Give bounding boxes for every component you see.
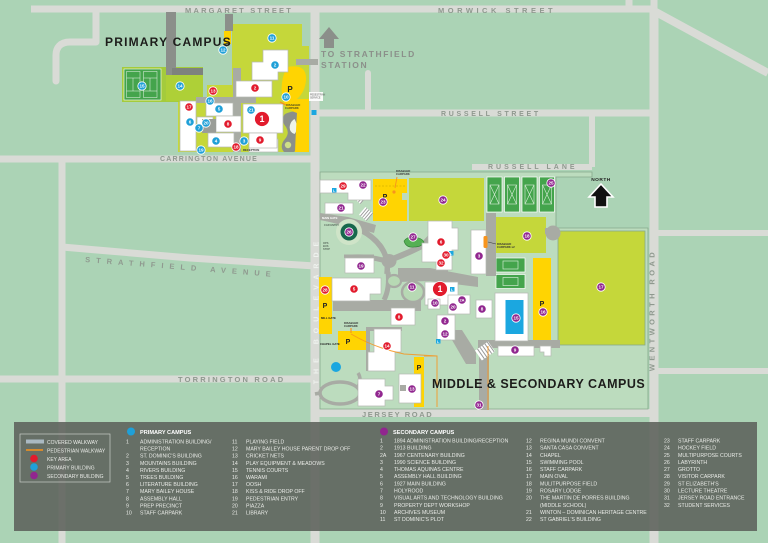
svg-text:ST. DOMINIC'S BUILDING: ST. DOMINIC'S BUILDING	[140, 454, 202, 460]
svg-text:P: P	[287, 85, 293, 94]
svg-text:27: 27	[410, 235, 416, 240]
svg-text:MOUNTAINS BUILDING: MOUNTAINS BUILDING	[140, 461, 197, 467]
svg-text:20: 20	[450, 305, 456, 310]
svg-text:GROTTO: GROTTO	[678, 467, 700, 473]
svg-text:3: 3	[243, 139, 246, 144]
svg-text:19: 19	[358, 264, 364, 269]
svg-text:16: 16	[207, 99, 213, 104]
svg-text:9: 9	[380, 503, 383, 509]
svg-text:6: 6	[189, 120, 192, 125]
svg-text:8: 8	[227, 122, 230, 127]
svg-text:25: 25	[548, 181, 554, 186]
svg-text:18: 18	[526, 481, 532, 487]
svg-text:WARAMI: WARAMI	[246, 475, 267, 481]
svg-text:CHAPEL: CHAPEL	[540, 453, 561, 459]
svg-text:8: 8	[380, 496, 383, 502]
svg-text:24: 24	[664, 446, 670, 452]
svg-text:TORRINGTON ROAD: TORRINGTON ROAD	[178, 375, 285, 384]
svg-text:MULTIPURPOSE COURTS: MULTIPURPOSE COURTS	[678, 453, 742, 459]
svg-text:COVERED WALKWAY: COVERED WALKWAY	[47, 440, 99, 446]
svg-text:P: P	[417, 365, 422, 372]
svg-text:1: 1	[437, 284, 442, 294]
svg-text:VISITOR CARPARK: VISITOR CARPARK	[678, 474, 725, 480]
svg-text:ST GABRIEL'S BUILDING: ST GABRIEL'S BUILDING	[540, 517, 601, 523]
svg-text:28: 28	[664, 474, 670, 480]
svg-text:29: 29	[664, 481, 670, 487]
svg-text:30: 30	[443, 253, 449, 258]
svg-text:16: 16	[526, 467, 532, 473]
svg-text:STAFF CARPARK: STAFF CARPARK	[678, 439, 721, 445]
svg-text:SWIMMING POOL: SWIMMING POOL	[540, 460, 584, 466]
svg-text:HOCKEY FIELD: HOCKEY FIELD	[678, 446, 716, 452]
svg-text:MULITPURPOSE FIELD: MULITPURPOSE FIELD	[540, 481, 597, 487]
svg-text:PRIMARY BUILDING: PRIMARY BUILDING	[47, 466, 95, 472]
svg-text:12: 12	[220, 48, 226, 53]
svg-text:KEY AREA: KEY AREA	[47, 457, 72, 463]
svg-text:14: 14	[526, 453, 532, 459]
svg-text:NORTH: NORTH	[591, 177, 611, 183]
svg-text:20: 20	[232, 503, 238, 509]
svg-text:10: 10	[432, 301, 438, 306]
svg-text:1: 1	[380, 439, 383, 445]
svg-text:9: 9	[126, 503, 129, 509]
svg-text:1913 BUILDING: 1913 BUILDING	[394, 446, 431, 452]
svg-text:LECTURE THEATRE: LECTURE THEATRE	[678, 489, 728, 495]
svg-text:1: 1	[126, 440, 129, 446]
svg-text:MARY BAILEY HOUSE PARENT DROP: MARY BAILEY HOUSE PARENT DROP OFF	[246, 447, 350, 453]
svg-text:26: 26	[664, 460, 670, 466]
svg-text:2: 2	[444, 319, 447, 324]
svg-text:16: 16	[232, 475, 238, 481]
svg-text:32: 32	[438, 261, 444, 266]
svg-text:ADMINISTRATION BUILDING/: ADMINISTRATION BUILDING/	[140, 440, 212, 446]
svg-text:14: 14	[177, 84, 183, 89]
svg-text:3: 3	[126, 461, 129, 467]
svg-text:CRICKET NETS: CRICKET NETS	[246, 454, 284, 460]
svg-text:20: 20	[526, 496, 532, 502]
svg-text:15: 15	[232, 468, 238, 474]
svg-text:7: 7	[378, 392, 381, 397]
svg-text:2A: 2A	[459, 297, 464, 302]
svg-text:17: 17	[598, 285, 604, 290]
svg-text:LITERATURE BUILDING: LITERATURE BUILDING	[140, 482, 198, 488]
svg-text:3: 3	[478, 254, 481, 259]
svg-text:14: 14	[232, 461, 238, 467]
svg-text:SECONDARY BUILDING: SECONDARY BUILDING	[47, 474, 104, 480]
svg-text:PLAYING FIELD: PLAYING FIELD	[246, 440, 284, 446]
svg-text:10: 10	[380, 510, 386, 516]
svg-text:10: 10	[283, 95, 289, 100]
svg-text:ROSARY LODGE: ROSARY LODGE	[540, 489, 582, 495]
svg-text:13: 13	[409, 387, 415, 392]
svg-text:25: 25	[664, 453, 670, 459]
svg-text:10: 10	[126, 511, 132, 517]
svg-text:RECEPTION: RECEPTION	[140, 447, 171, 453]
svg-text:ST ELIZABETH'S: ST ELIZABETH'S	[678, 481, 719, 487]
svg-text:12: 12	[442, 332, 448, 337]
svg-text:29: 29	[340, 184, 346, 189]
svg-text:20: 20	[203, 121, 209, 126]
svg-text:7: 7	[380, 489, 383, 495]
svg-text:26: 26	[346, 230, 352, 235]
svg-text:8: 8	[126, 496, 129, 502]
svg-text:SERVICE: SERVICE	[310, 97, 321, 100]
svg-text:6: 6	[380, 481, 383, 487]
svg-text:HOLYROOD: HOLYROOD	[394, 489, 424, 495]
svg-text:PEDESTRIAN ENTRY: PEDESTRIAN ENTRY	[246, 496, 299, 502]
svg-text:9: 9	[514, 348, 517, 353]
svg-text:18: 18	[524, 234, 530, 239]
svg-text:WINTON – DOMINICAN HERITAGE CE: WINTON – DOMINICAN HERITAGE CENTRE	[540, 510, 647, 516]
svg-text:13: 13	[210, 89, 216, 94]
svg-text:9: 9	[259, 138, 262, 143]
svg-text:CARRINGTON AVENUE: CARRINGTON AVENUE	[160, 156, 258, 163]
svg-text:MAIN OVAL: MAIN OVAL	[540, 474, 568, 480]
svg-text:11: 11	[232, 440, 237, 446]
svg-text:31: 31	[476, 403, 482, 408]
svg-text:1990 SCIENCE BUILDING: 1990 SCIENCE BUILDING	[394, 460, 456, 466]
svg-text:17: 17	[232, 482, 238, 488]
svg-text:16: 16	[540, 310, 546, 315]
svg-text:CAR ENTRY: CAR ENTRY	[324, 223, 339, 227]
svg-text:2: 2	[380, 446, 383, 452]
svg-text:SANTA CASA CONVENT: SANTA CASA CONVENT	[540, 446, 600, 452]
svg-text:19: 19	[526, 489, 532, 495]
svg-text:STAFF CARPARK: STAFF CARPARK	[140, 511, 183, 517]
svg-text:CARPARK: CARPARK	[344, 324, 358, 328]
svg-text:1894 ADMINISTRATION BUILDING/R: 1894 ADMINISTRATION BUILDING/RECEPTION	[394, 439, 509, 445]
svg-text:TENNIS COURTS: TENNIS COURTS	[246, 468, 289, 474]
svg-text:28: 28	[322, 288, 328, 293]
svg-text:23: 23	[664, 439, 670, 445]
svg-text:PEDESTRIAN WALKWAY: PEDESTRIAN WALKWAY	[47, 449, 106, 455]
svg-text:ASSEMBLY HALL BUILDING: ASSEMBLY HALL BUILDING	[394, 474, 462, 480]
svg-text:24: 24	[440, 198, 446, 203]
svg-text:CHAPEL GATE: CHAPEL GATE	[320, 342, 340, 346]
svg-text:18: 18	[232, 489, 238, 495]
svg-text:2: 2	[126, 454, 129, 460]
svg-text:MILL GATE: MILL GATE	[321, 316, 336, 320]
svg-text:VISUAL ARTS AND TECHNOLOGY BUI: VISUAL ARTS AND TECHNOLOGY BUILDING	[394, 496, 503, 502]
svg-text:MARY BAILEY HOUSE: MARY BAILEY HOUSE	[140, 489, 195, 495]
svg-text:PRIMARY CAMPUS: PRIMARY CAMPUS	[105, 35, 232, 49]
svg-text:22: 22	[526, 517, 532, 523]
svg-text:P: P	[540, 301, 545, 308]
svg-text:STATION: STATION	[321, 60, 368, 70]
svg-text:2: 2	[254, 86, 257, 91]
svg-text:STUDENT SERVICES: STUDENT SERVICES	[678, 503, 731, 509]
svg-text:RECEPTION: RECEPTION	[243, 148, 259, 152]
svg-text:7: 7	[198, 126, 201, 131]
svg-text:MIDDLE & SECONDARY CAMPUS: MIDDLE & SECONDARY CAMPUS	[432, 377, 645, 391]
svg-text:15: 15	[139, 84, 145, 89]
svg-text:2: 2	[274, 63, 277, 68]
svg-text:1927 MAIN BUILDING: 1927 MAIN BUILDING	[394, 481, 446, 487]
svg-text:17: 17	[186, 105, 192, 110]
svg-text:21: 21	[248, 108, 254, 113]
svg-text:ARCHIVES MUSEUM: ARCHIVES MUSEUM	[394, 510, 445, 516]
svg-text:OOSH: OOSH	[246, 482, 262, 488]
svg-text:JERSEY ROAD ENTRANCE: JERSEY ROAD ENTRANCE	[678, 496, 745, 502]
svg-text:18: 18	[233, 145, 239, 150]
svg-text:17: 17	[526, 474, 532, 480]
svg-text:PRIMARY CAMPUS: PRIMARY CAMPUS	[140, 430, 192, 436]
svg-text:11: 11	[270, 36, 275, 41]
svg-text:MORWICK STREET: MORWICK STREET	[438, 6, 556, 15]
svg-text:CARPARK: CARPARK	[285, 106, 299, 110]
svg-text:P: P	[346, 339, 351, 346]
svg-text:12: 12	[232, 447, 238, 453]
svg-text:KISS & RIDE DROP OFF: KISS & RIDE DROP OFF	[246, 489, 305, 495]
svg-text:2A: 2A	[380, 453, 387, 459]
svg-text:THE MARTIN DE PORRES BUILDING: THE MARTIN DE PORRES BUILDING	[540, 496, 630, 502]
svg-text:SECONDARY CAMPUS: SECONDARY CAMPUS	[393, 430, 454, 436]
svg-text:STOP: STOP	[323, 247, 330, 251]
svg-text:5: 5	[126, 475, 129, 481]
svg-text:19: 19	[198, 148, 204, 153]
svg-text:MAIN GATE: MAIN GATE	[322, 216, 338, 220]
svg-text:LABYRINTH: LABYRINTH	[678, 460, 707, 466]
svg-text:JERSEY ROAD: JERSEY ROAD	[362, 410, 433, 419]
svg-text:19: 19	[232, 496, 238, 502]
svg-text:21: 21	[338, 206, 344, 211]
svg-text:23: 23	[380, 200, 386, 205]
svg-text:THOMAS AQUINAS CENTRE: THOMAS AQUINAS CENTRE	[394, 467, 464, 473]
svg-text:MARGARET STREET: MARGARET STREET	[185, 6, 293, 15]
svg-text:ASSEMBLY HALL: ASSEMBLY HALL	[140, 496, 182, 502]
svg-text:30: 30	[664, 489, 670, 495]
svg-text:12: 12	[526, 439, 532, 445]
svg-text:5: 5	[380, 474, 383, 480]
svg-text:21: 21	[232, 511, 238, 517]
svg-text:1967 CENTENARY BUILDING: 1967 CENTENARY BUILDING	[394, 453, 465, 459]
svg-text:RUSSELL STREET: RUSSELL STREET	[441, 111, 541, 118]
svg-text:14: 14	[384, 344, 390, 349]
svg-text:REGINA MUNDI CONVENT: REGINA MUNDI CONVENT	[540, 439, 606, 445]
svg-text:21: 21	[526, 510, 532, 516]
svg-text:8: 8	[481, 307, 484, 312]
svg-text:CARPARK x2: CARPARK x2	[497, 245, 515, 249]
svg-text:PLAY EQUIPMENT & MEADOWS: PLAY EQUIPMENT & MEADOWS	[246, 461, 325, 467]
svg-text:RIVERS BUILDING: RIVERS BUILDING	[140, 468, 185, 474]
svg-text:5: 5	[218, 107, 221, 112]
svg-text:15: 15	[526, 460, 532, 466]
svg-text:PROPERTY DEPT WORKSHOP: PROPERTY DEPT WORKSHOP	[394, 503, 470, 509]
svg-text:4: 4	[126, 468, 129, 474]
svg-text:11: 11	[380, 517, 385, 523]
svg-text:CARPARK: CARPARK	[396, 172, 410, 176]
svg-text:4: 4	[380, 467, 383, 473]
svg-text:LIBRARY: LIBRARY	[246, 511, 269, 517]
svg-text:31: 31	[664, 496, 670, 502]
svg-text:P: P	[323, 303, 328, 310]
svg-text:1: 1	[259, 114, 264, 124]
svg-text:(MIDDLE SCHOOL): (MIDDLE SCHOOL)	[540, 503, 587, 509]
svg-text:8: 8	[398, 315, 401, 320]
svg-text:32: 32	[664, 503, 670, 509]
svg-text:WENTWORTH ROAD: WENTWORTH ROAD	[647, 249, 656, 371]
svg-text:4: 4	[215, 139, 218, 144]
svg-text:PREP PRECINCT: PREP PRECINCT	[140, 503, 183, 509]
svg-text:ST DOMINIC'S PLOT: ST DOMINIC'S PLOT	[394, 517, 445, 523]
svg-text:11: 11	[410, 285, 415, 290]
svg-text:6: 6	[440, 240, 443, 245]
svg-text:15: 15	[513, 316, 519, 321]
svg-text:PIAZZA: PIAZZA	[246, 503, 265, 509]
svg-text:22: 22	[360, 183, 366, 188]
svg-text:13: 13	[232, 454, 238, 460]
svg-text:STAFF CARPARK: STAFF CARPARK	[540, 467, 583, 473]
svg-text:RUSSELL LANE: RUSSELL LANE	[488, 164, 578, 171]
svg-text:5: 5	[353, 287, 356, 292]
svg-text:27: 27	[664, 467, 670, 473]
svg-text:6: 6	[126, 482, 129, 488]
svg-text:13: 13	[526, 446, 532, 452]
svg-text:TREES BUILDING: TREES BUILDING	[140, 475, 183, 481]
svg-text:7: 7	[126, 489, 129, 495]
svg-text:TO STRATHFIELD: TO STRATHFIELD	[321, 49, 416, 59]
svg-text:3: 3	[380, 460, 383, 466]
